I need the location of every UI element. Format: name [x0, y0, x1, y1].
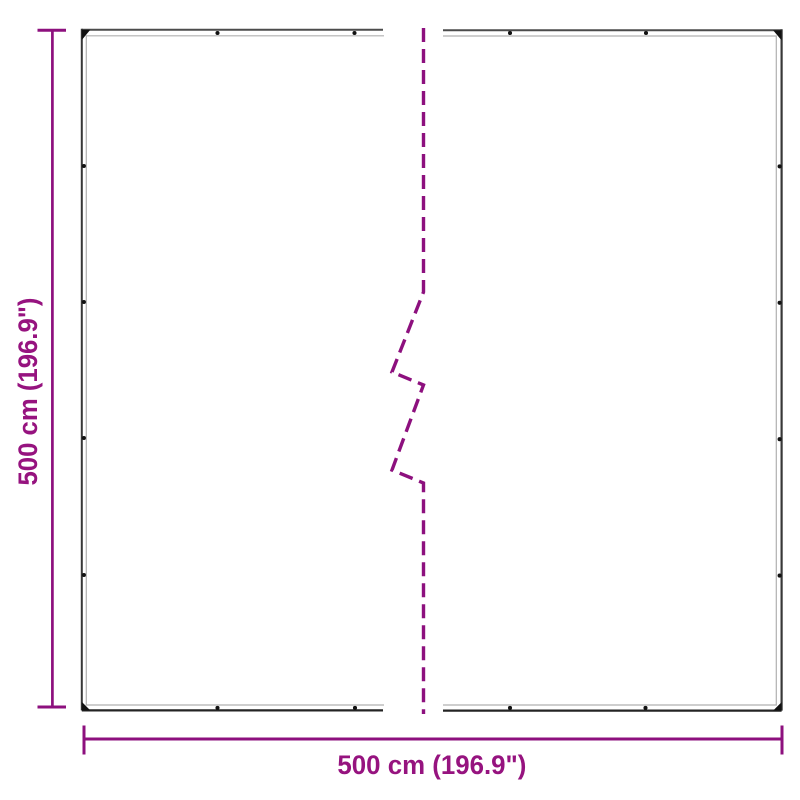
svg-text:500 cm (196.9"): 500 cm (196.9") [13, 298, 43, 486]
svg-text:500 cm (196.9"): 500 cm (196.9") [337, 750, 526, 780]
